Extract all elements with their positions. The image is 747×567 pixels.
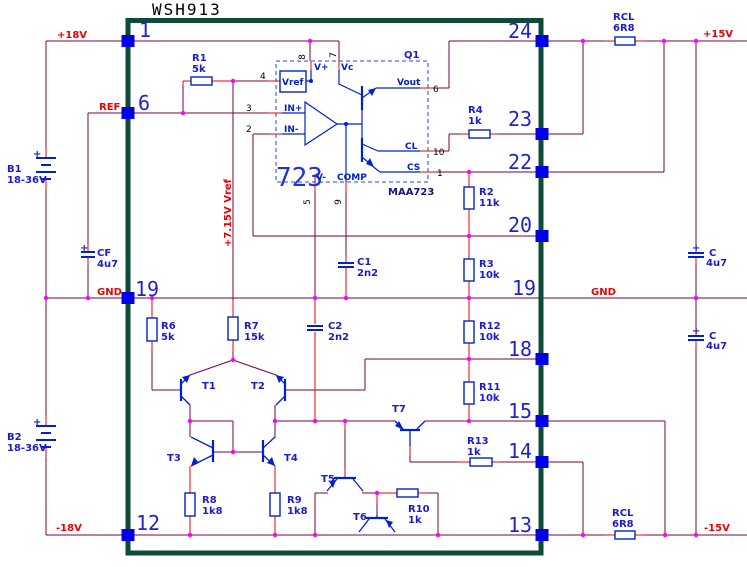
pad-pin13	[536, 529, 549, 541]
t2-label: T2	[251, 381, 265, 392]
c-top-plus: +	[692, 243, 700, 254]
r2-value: 11k	[479, 198, 500, 209]
junction	[273, 533, 277, 537]
ic-cl-label: CL	[405, 142, 418, 152]
r7-name: R7	[244, 321, 259, 332]
c-top-value: 4u7	[706, 258, 727, 269]
ic-vminus-label: V-	[316, 173, 326, 183]
r10-name: R10	[408, 504, 430, 515]
resistor-r10-body	[397, 489, 418, 497]
junction	[181, 111, 185, 115]
junction	[467, 296, 471, 300]
q1-label: Q1	[404, 50, 420, 61]
t4-arrow	[267, 457, 275, 466]
resistor-rcl-bot-body	[615, 531, 635, 539]
pad-pin19-left	[122, 292, 135, 304]
cf-plus: +	[80, 243, 88, 254]
pad-pin24	[536, 35, 549, 47]
pad-pin22	[536, 166, 549, 178]
c2-value: 2n2	[328, 332, 349, 343]
r9-value: 1k8	[287, 506, 308, 517]
r13-name: R13	[467, 436, 489, 447]
net-label-vref-rail: +7.15V Vref	[223, 178, 234, 247]
r8-value: 1k8	[202, 506, 223, 517]
junction	[313, 533, 317, 537]
resistor-r12-body	[464, 321, 474, 343]
ic-pin-8: 8	[298, 54, 308, 60]
pin-label-18: 18	[508, 337, 532, 361]
ic-node-vref	[309, 79, 313, 83]
t6-arrow	[386, 520, 393, 528]
r9-name: R9	[287, 495, 302, 506]
rcl-bot-value: 6R8	[612, 519, 634, 530]
pin-label-15: 15	[508, 399, 532, 423]
junction	[467, 170, 471, 174]
pin-label-20: 20	[508, 213, 532, 237]
r3-name: R3	[479, 259, 494, 270]
net-label-ref: REF	[99, 102, 120, 113]
junction	[344, 296, 348, 300]
t7-label: T7	[392, 404, 406, 415]
junction	[467, 234, 471, 238]
r6-value: 5k	[161, 332, 175, 343]
r4-name: R4	[468, 105, 483, 116]
pad-pin14	[536, 456, 549, 468]
pad-pin18	[536, 353, 549, 365]
cf-value: 4u7	[97, 259, 118, 270]
resistors	[147, 37, 635, 539]
rcl-top-name: RCL	[613, 12, 635, 23]
schematic-canvas: WSH913 1 6 19 12 24 23 22 20 19 18 15 14…	[0, 0, 747, 567]
r11-name: R11	[479, 382, 501, 393]
resistor-r2-body	[464, 187, 474, 209]
pad-pin6	[122, 107, 135, 119]
junction	[694, 533, 698, 537]
b1-plus: +	[33, 149, 41, 160]
ic-pin-6: 6	[433, 85, 439, 95]
r13-value: 1k	[467, 447, 481, 458]
r11-value: 10k	[479, 393, 500, 404]
ic-vplus-label: V+	[314, 63, 329, 73]
net-label-p18v: +18V	[57, 30, 87, 41]
net-label-p15v: +15V	[703, 29, 733, 40]
pad-pin12	[122, 529, 135, 541]
resistor-r1-body	[191, 77, 212, 85]
pin-label-19-left: 19	[135, 277, 159, 301]
pin-label-22: 22	[508, 150, 532, 174]
resistor-r7-body	[228, 317, 238, 340]
junction	[308, 39, 312, 43]
t6-label: T6	[353, 512, 367, 523]
junction	[44, 296, 48, 300]
junction	[313, 296, 317, 300]
net-label-m18v: -18V	[56, 523, 82, 534]
module-title: WSH913	[152, 0, 222, 19]
junction	[694, 296, 698, 300]
b2-value: 18-36V	[7, 443, 47, 454]
ic-pin-1: 1	[437, 169, 443, 179]
ic-pin-10: 10	[433, 148, 445, 158]
ic-pin-9: 9	[334, 199, 344, 205]
r1-value: 5k	[192, 64, 206, 75]
c1-value: 2n2	[357, 268, 378, 279]
pad-pin1	[122, 35, 135, 47]
ic-inn-label: IN-	[284, 125, 299, 135]
junction	[313, 419, 317, 423]
junction	[231, 79, 235, 83]
net-label-gnd-right: GND	[591, 287, 616, 298]
junction	[467, 419, 471, 423]
junction	[231, 450, 235, 454]
resistor-r13-body	[470, 458, 492, 466]
pad-pin23	[536, 128, 549, 140]
junction	[662, 39, 666, 43]
pin-label-12: 12	[136, 511, 160, 535]
ic-pin-2: 2	[246, 125, 252, 135]
c2-name: C2	[328, 321, 342, 332]
t3-label: T3	[167, 453, 181, 464]
t5-label: T5	[321, 474, 335, 485]
pad-pin20	[536, 230, 549, 242]
pin-label-24: 24	[508, 19, 532, 43]
resistor-rcl-top-body	[615, 37, 635, 45]
ic-inp-label: IN+	[284, 104, 302, 114]
resistor-r11-body	[464, 382, 474, 404]
cs-arrow	[366, 158, 374, 167]
r4-value: 1k	[468, 116, 482, 127]
resistor-r4-body	[469, 130, 490, 138]
r12-value: 10k	[479, 332, 500, 343]
t4-label: T4	[284, 453, 298, 464]
opamp-triangle	[305, 102, 337, 145]
b2-plus: +	[33, 417, 41, 428]
resistor-r6-body	[147, 318, 157, 341]
cf-name: CF	[97, 248, 111, 259]
rcl-top-value: 6R8	[613, 23, 635, 34]
r7-value: 15k	[244, 332, 265, 343]
pin-label-6: 6	[138, 91, 150, 115]
junction	[375, 491, 379, 495]
junction	[231, 358, 235, 362]
r12-name: R12	[479, 321, 501, 332]
ic-vc-label: Vc	[341, 63, 353, 73]
pin-label-13: 13	[508, 513, 532, 537]
net-label-gnd-left: GND	[97, 287, 122, 298]
r6-name: R6	[161, 321, 176, 332]
net-label-m15v: -15V	[704, 523, 730, 534]
junction	[188, 419, 192, 423]
r1-name: R1	[192, 53, 207, 64]
junction	[581, 39, 585, 43]
t1-label: T1	[202, 381, 216, 392]
c1-name: C1	[357, 257, 371, 268]
b1-value: 18-36V	[7, 175, 47, 186]
ic-comp-label: COMP	[337, 173, 367, 183]
junction	[581, 533, 585, 537]
junction	[694, 39, 698, 43]
ic-vref-label: Vref	[282, 78, 304, 88]
r10-value: 1k	[408, 515, 422, 526]
c-bot-value: 4u7	[706, 341, 727, 352]
ic-pin-3: 3	[246, 104, 252, 114]
ic-vout-label: Vout	[397, 78, 421, 88]
b2-name: B2	[7, 432, 22, 443]
ic-pin-4: 4	[260, 72, 266, 82]
junction	[436, 533, 440, 537]
junction	[343, 419, 347, 423]
pin-label-1: 1	[139, 18, 151, 42]
ic-cs-label: CS	[407, 163, 420, 173]
r8-name: R8	[202, 495, 217, 506]
ic-node-opamp-out	[344, 122, 348, 126]
junction	[663, 533, 667, 537]
resistor-r9-body	[270, 493, 280, 516]
junction	[273, 419, 277, 423]
ic-pin-7: 7	[329, 52, 339, 58]
pad-pin15	[536, 415, 549, 427]
junction	[188, 533, 192, 537]
pin-label-14: 14	[508, 439, 532, 463]
r3-value: 10k	[479, 270, 500, 281]
junction	[467, 357, 471, 361]
rcl-bot-name: RCL	[612, 508, 634, 519]
ic-part-label: MAA723	[388, 187, 434, 198]
pin-label-19-right: 19	[512, 276, 536, 300]
schematic-svg: WSH913 1 6 19 12 24 23 22 20 19 18 15 14…	[0, 0, 747, 567]
q1-arrow	[368, 88, 376, 96]
resistor-r3-body	[464, 259, 474, 281]
pin-label-23: 23	[508, 107, 532, 131]
c-bot-plus: +	[692, 326, 700, 337]
resistor-r8-body	[185, 493, 195, 516]
junction	[86, 296, 90, 300]
ic-pin-5: 5	[303, 199, 313, 205]
b1-name: B1	[7, 164, 22, 175]
r2-name: R2	[479, 187, 494, 198]
